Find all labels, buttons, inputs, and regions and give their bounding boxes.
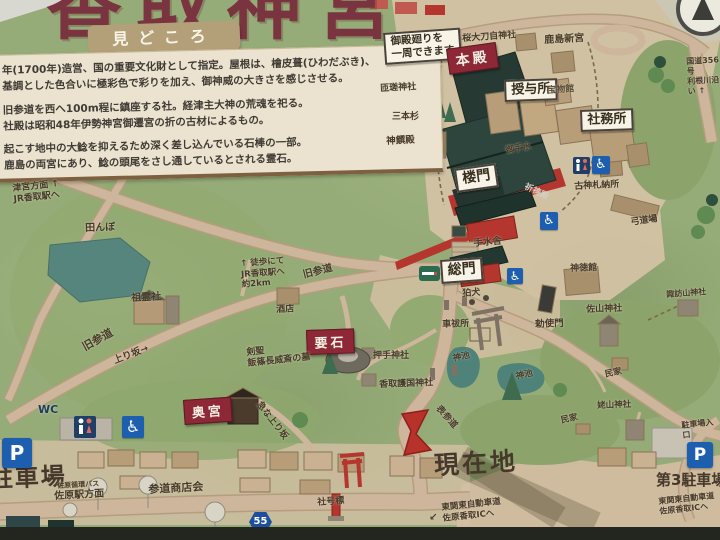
wheelchair-icon: ♿ (122, 416, 144, 438)
label-chokushimon: 勅使門 (535, 318, 564, 331)
label-gokoku-jinja: 香取護国神社 (379, 378, 433, 391)
label-sanbonsugi: 三本杉 (392, 112, 419, 123)
shrine-guide-map-board: 香取神宮 見どころ 年(1700年)造営、国の重要文化財として指定。屋根は、檜皮… (0, 0, 720, 540)
label-shago-pillar: 社号標 (317, 496, 345, 509)
label-ubayama-jinja: 姥山神社 (597, 400, 631, 412)
wheelchair-icon: ♿ (540, 212, 558, 230)
label-ic-arrow: ↙ (429, 512, 437, 525)
label-wc: WC (38, 403, 58, 417)
label-sando-shopping-street: 参道商店会 (148, 480, 204, 497)
parking-icon: P (2, 438, 32, 468)
parking-icon: P (687, 442, 713, 468)
label-somon: 総門 (440, 257, 484, 283)
label-shinsenden: 神饌殿 (386, 135, 415, 148)
info-panel: 年(1700年)造営、国の重要文化財として指定。屋根は、檜皮葺(ひわだぶき)、 … (0, 44, 443, 184)
label-kurumabaraisho: 車祓所 (442, 319, 469, 331)
label-route-356-tone-river: 国道356号 利根川沿い ↑ (686, 55, 720, 97)
label-komainu: 狛犬 (462, 288, 481, 300)
label-sawara-station-direction: 佐原駅方面 (54, 488, 105, 503)
smoking-area-icon (419, 266, 440, 281)
label-homotsukan: 宝物館 (547, 84, 575, 97)
label-oshide-jinja: 押手神社 (373, 351, 409, 362)
label-temizusha: 手水舎 (473, 236, 502, 250)
photo-bottom-edge (0, 527, 720, 540)
label-walk-to-jr-katori: ↑ 徒歩にて JR香取駅へ 約2km (240, 256, 286, 291)
label-soreisha: 祖霊社 (131, 291, 162, 305)
label-furuofuda-nosho: 古神札納所 (574, 180, 620, 194)
label-shamusho: 社務所 (580, 108, 634, 132)
wheelchair-icon: ♿ (507, 268, 523, 284)
label-sayama-jinja: 佐山神社 (586, 304, 622, 317)
wheelchair-icon: ♿ (592, 156, 610, 174)
restroom-icon (74, 416, 96, 438)
label-okunomiya: 奥宮 (183, 397, 233, 425)
label-sosa-jinja: 匝瑳神社 (380, 82, 417, 95)
label-kashima-shingu: 鹿島新宮 (544, 33, 585, 48)
label-parking-entrance: 駐車場入口 (681, 417, 720, 441)
label-parking-lot-3: 第3駐車場 (656, 469, 720, 490)
restroom-icon (573, 157, 590, 174)
label-rice-field: 田んぼ (85, 222, 115, 236)
label-shop: 酒店 (276, 304, 294, 316)
label-shintokukan: 神徳館 (570, 263, 597, 275)
label-current-location: 現在地 (433, 442, 519, 482)
label-kanameishi: 要石 (306, 328, 355, 355)
